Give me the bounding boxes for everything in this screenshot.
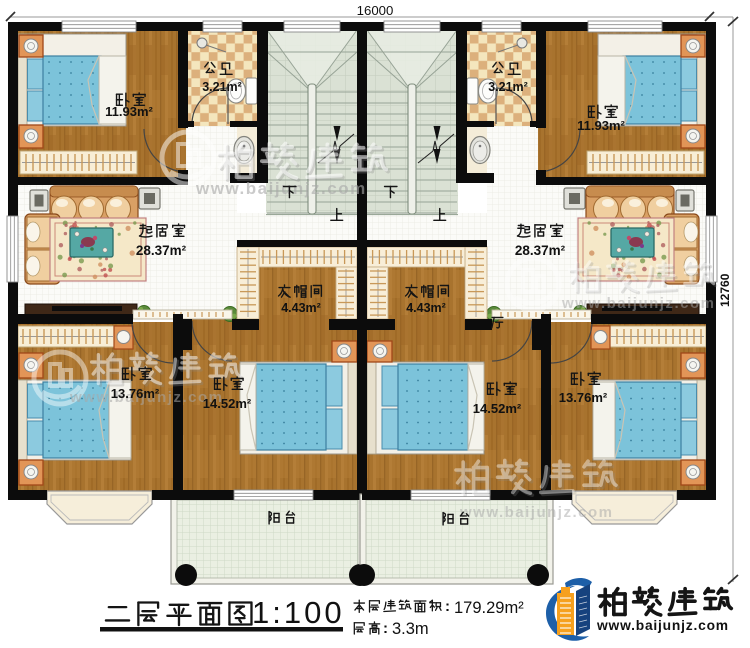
svg-text:3.3m: 3.3m [392, 620, 429, 638]
svg-text:www.baijunjz.com: www.baijunjz.com [561, 295, 715, 312]
svg-text:179.29m²: 179.29m² [454, 599, 524, 617]
svg-text:4.43m²: 4.43m² [281, 301, 321, 315]
svg-text:1:100: 1:100 [252, 595, 345, 630]
svg-text:www.baijunjz.com: www.baijunjz.com [596, 618, 729, 633]
svg-text:www.baijunjz.com: www.baijunjz.com [195, 179, 367, 198]
svg-text:3.21m²: 3.21m² [488, 80, 528, 94]
svg-text:11.93m²: 11.93m² [105, 104, 153, 119]
svg-text:28.37m²: 28.37m² [515, 243, 566, 258]
svg-text:4.43m²: 4.43m² [406, 301, 446, 315]
svg-text::: : [445, 598, 450, 615]
svg-text::: : [383, 620, 388, 637]
svg-text:www.baijunjz.com: www.baijunjz.com [459, 504, 613, 521]
svg-text:11.93m²: 11.93m² [577, 118, 625, 133]
svg-text:28.37m²: 28.37m² [136, 243, 187, 258]
svg-text:14.52m²: 14.52m² [203, 396, 252, 411]
svg-text:13.76m²: 13.76m² [559, 390, 608, 405]
svg-text:16000: 16000 [357, 3, 394, 18]
svg-text:3.21m²: 3.21m² [202, 80, 242, 94]
svg-text:13.76m²: 13.76m² [111, 386, 160, 401]
svg-text:14.52m²: 14.52m² [473, 401, 522, 416]
svg-text:12760: 12760 [718, 273, 732, 307]
